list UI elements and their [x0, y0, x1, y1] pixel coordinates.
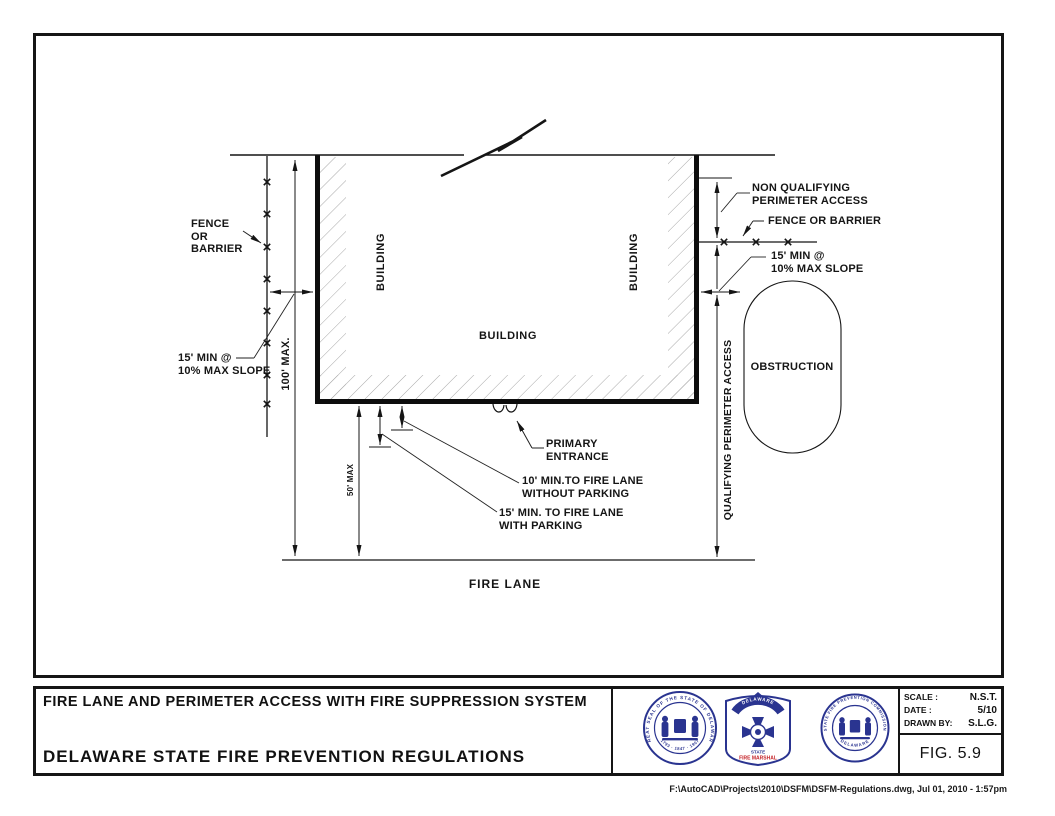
non-qualifying-access-label: NON QUALIFYING PERIMETER ACCESS: [752, 182, 868, 207]
leader-10-min: [404, 421, 519, 483]
marshal-fire-marshal-text: FIRE MARSHAL: [739, 756, 777, 762]
title-block: FIRE LANE AND PERIMETER ACCESS WITH FIRE…: [33, 686, 1004, 776]
slope-right-leader: [719, 257, 766, 291]
date-label: DATE :: [904, 704, 932, 717]
svg-text:DELAWARE: DELAWARE: [840, 738, 871, 748]
drawing-title: FIRE LANE AND PERIMETER ACCESS WITH FIRE…: [43, 694, 604, 710]
qualifying-access-label: QUALIFYING PERIMETER ACCESS: [722, 340, 735, 521]
date-value: 5/10: [978, 704, 997, 717]
obstruction-label: OBSTRUCTION: [751, 361, 834, 374]
commission-ring-bottom-text: DELAWARE: [840, 738, 871, 748]
state-fire-marshal-badge: DELAWARE STATE FIRE MARSHAL: [726, 692, 790, 765]
file-path-stamp: F:\AutoCAD\Projects\2010\DSFM\DSFM-Regul…: [669, 784, 1007, 794]
fence-or-barrier-label-right: FENCE OR BARRIER: [768, 215, 881, 228]
drawn-by-row: DRAWN BY: S.L.G.: [904, 717, 997, 730]
drawing-sheet: FENCE OR BARRIER 15' MIN @ 10% MAX SLOPE…: [0, 0, 1055, 816]
fence-right-leader: [743, 221, 764, 236]
great-seal-of-delaware: GREAT SEAL OF THE STATE OF DELAWARE 1793…: [613, 689, 716, 764]
dim-50-max-label: 50' MAX: [345, 464, 358, 496]
seal-strip: GREAT SEAL OF THE STATE OF DELAWARE 1793…: [613, 689, 898, 773]
dim-non-qualifying: [699, 178, 732, 289]
drawn-by-label: DRAWN BY:: [904, 717, 952, 730]
dim-15-min: [369, 406, 391, 447]
title-block-titles: FIRE LANE AND PERIMETER ACCESS WITH FIRE…: [36, 689, 613, 773]
dim-100-max-label: 100' MAX.: [280, 337, 293, 390]
seals-artwork: GREAT SEAL OF THE STATE OF DELAWARE 1793…: [613, 689, 898, 767]
building-label-right: BUILDING: [628, 233, 641, 291]
fire-lane-with-parking-label: 15' MIN. TO FIRE LANE WITH PARKING: [499, 507, 624, 532]
dim-10-min: [391, 406, 413, 430]
figure-number: FIG. 5.9: [900, 735, 1001, 773]
break-symbol-icon: [441, 120, 546, 176]
organization-title: DELAWARE STATE FIRE PREVENTION REGULATIO…: [43, 747, 604, 767]
marshal-state-text: STATE: [751, 750, 765, 755]
right-fence: [697, 239, 817, 245]
primary-entrance-label: PRIMARY ENTRANCE: [546, 438, 609, 463]
fence-left-leader: [243, 231, 261, 243]
title-block-meta: SCALE : N.S.T. DATE : 5/10 DRAWN BY: S.L…: [898, 689, 1001, 773]
scale-row: SCALE : N.S.T.: [904, 691, 997, 704]
slope-label-right: 15' MIN @ 10% MAX SLOPE: [771, 250, 863, 275]
left-fence: [264, 156, 270, 437]
building-label-center: BUILDING: [479, 330, 537, 343]
fire-prevention-commission-seal: STATE FIRE PREVENTION COMMISSION DELAWAR…: [822, 695, 889, 762]
fire-lane-label: FIRE LANE: [469, 578, 541, 591]
leader-15-min: [382, 434, 497, 512]
fence-or-barrier-label-left: FENCE OR BARRIER: [191, 218, 243, 256]
building-label-left: BUILDING: [375, 233, 388, 291]
slope-label-left: 15' MIN @ 10% MAX SLOPE: [178, 352, 270, 377]
building-outline: [315, 156, 699, 402]
scale-value: N.S.T.: [970, 691, 997, 704]
non-qualifying-leader: [721, 193, 750, 212]
date-row: DATE : 5/10: [904, 704, 997, 717]
primary-entrance-doors: [493, 404, 517, 412]
drawn-by-value: S.L.G.: [968, 717, 997, 730]
scale-label: SCALE :: [904, 691, 938, 704]
fire-lane-without-parking-label: 10' MIN.TO FIRE LANE WITHOUT PARKING: [522, 475, 643, 500]
primary-entrance-leader: [517, 421, 544, 448]
